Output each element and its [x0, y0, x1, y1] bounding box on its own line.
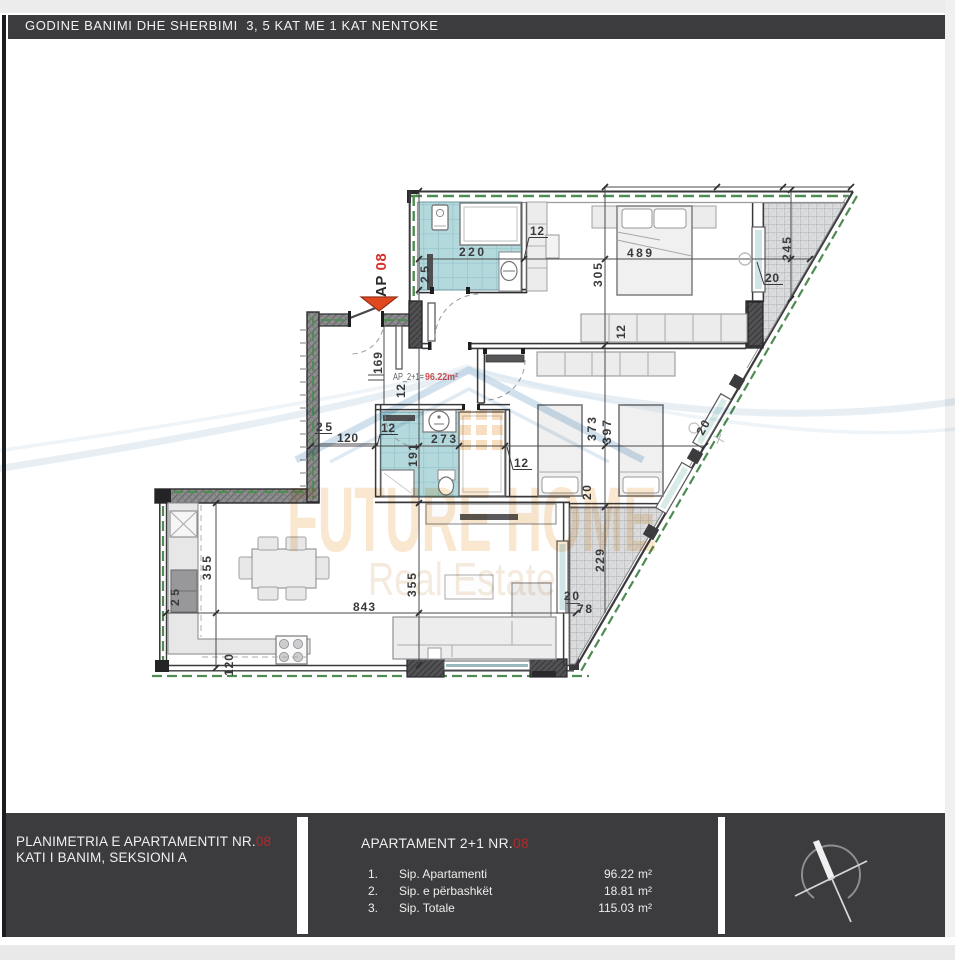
- svg-text:191: 191: [406, 444, 420, 467]
- svg-text:120: 120: [222, 654, 236, 676]
- svg-text:273: 273: [431, 432, 456, 446]
- svg-text:20: 20: [564, 589, 579, 603]
- svg-text:Real Estate: Real Estate: [368, 553, 556, 605]
- svg-text:25: 25: [316, 420, 332, 434]
- svg-text:12: 12: [614, 325, 628, 339]
- svg-text:20: 20: [765, 271, 779, 285]
- svg-text:305: 305: [591, 263, 605, 287]
- svg-text:355: 355: [200, 556, 214, 580]
- svg-text:12: 12: [530, 224, 544, 238]
- svg-text:245: 245: [780, 237, 794, 261]
- svg-text:12: 12: [514, 456, 528, 470]
- svg-text:AP 08: AP 08: [373, 253, 390, 297]
- svg-text:169: 169: [371, 352, 385, 374]
- svg-text:78: 78: [577, 602, 592, 616]
- svg-text:489: 489: [627, 246, 652, 260]
- svg-text:220: 220: [459, 245, 484, 259]
